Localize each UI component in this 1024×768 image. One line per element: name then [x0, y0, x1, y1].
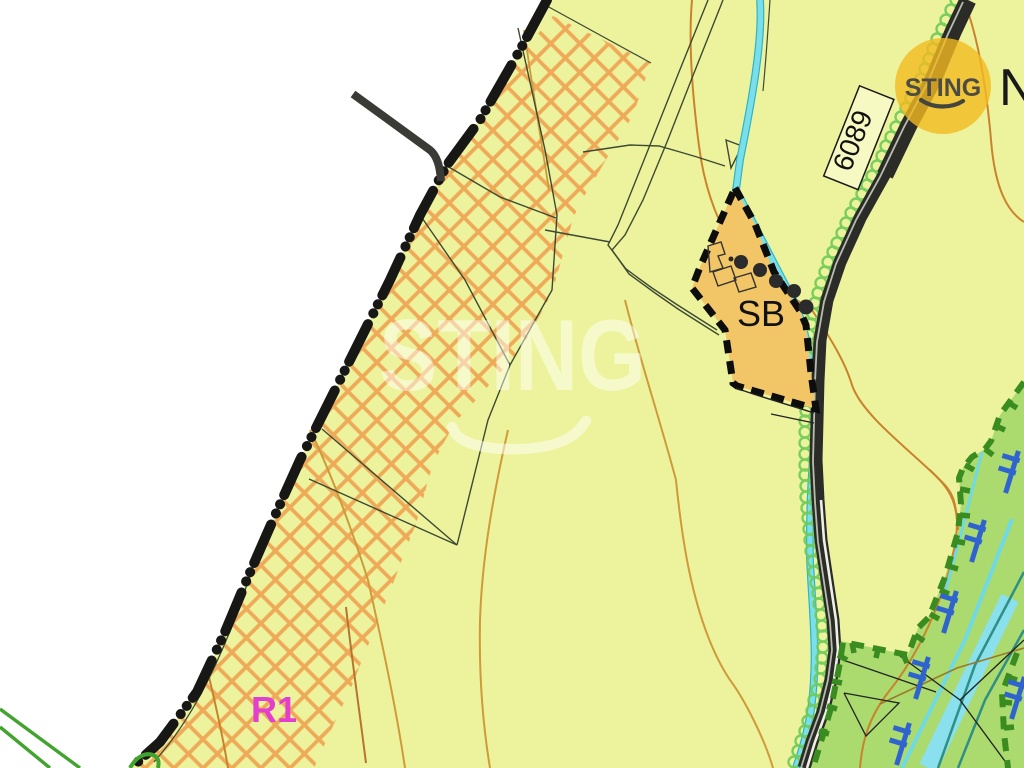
svg-text:N: N — [999, 59, 1024, 117]
svg-text:SB: SB — [737, 293, 785, 334]
svg-text:STING: STING — [379, 300, 646, 412]
svg-text:STING: STING — [905, 74, 981, 102]
svg-text:R1: R1 — [251, 689, 297, 730]
